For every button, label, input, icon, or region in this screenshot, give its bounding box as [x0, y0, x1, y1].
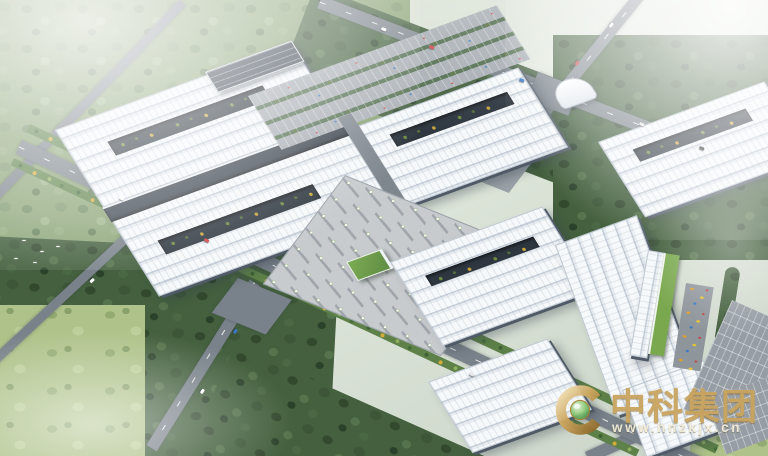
watermark: 中科集团 www.hnzkjx.cn — [0, 0, 768, 456]
website-url-watermark: www.hnzkjx.cn — [612, 420, 742, 435]
aerial-rendering-scene: 中科集团 www.hnzkjx.cn — [0, 0, 768, 456]
company-logo-icon — [552, 382, 608, 438]
